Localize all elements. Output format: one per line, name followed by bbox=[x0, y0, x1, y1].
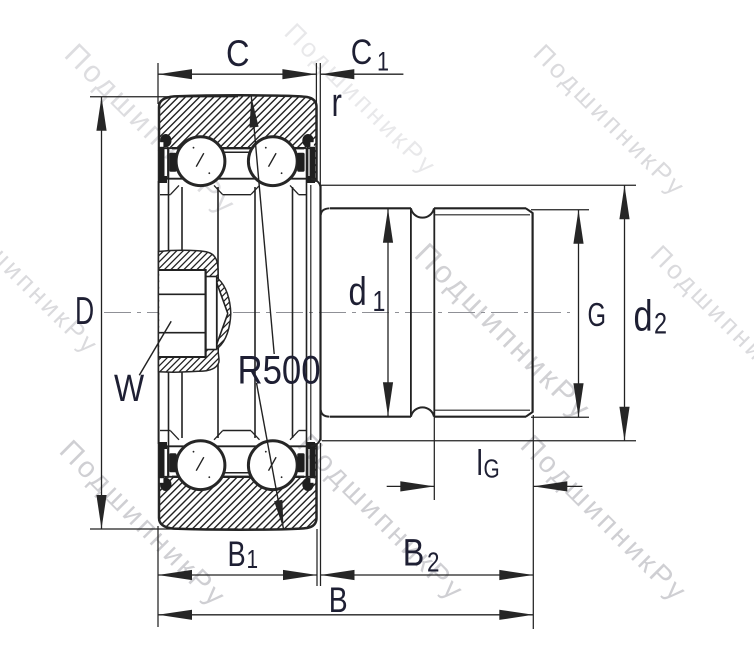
svg-text:G: G bbox=[588, 297, 606, 334]
svg-text:d: d bbox=[349, 269, 367, 314]
svg-text:1: 1 bbox=[377, 47, 389, 77]
svg-text:r: r bbox=[332, 80, 342, 125]
svg-text:G: G bbox=[484, 454, 500, 483]
svg-text:B: B bbox=[403, 532, 425, 574]
svg-text:W: W bbox=[114, 367, 144, 409]
svg-text:l: l bbox=[477, 442, 483, 483]
svg-text:D: D bbox=[75, 290, 94, 333]
svg-text:1: 1 bbox=[373, 284, 386, 317]
svg-text:d: d bbox=[634, 291, 653, 340]
svg-text:C: C bbox=[351, 33, 372, 72]
svg-text:C: C bbox=[226, 33, 250, 74]
svg-text:2: 2 bbox=[427, 547, 439, 578]
svg-text:B: B bbox=[329, 580, 348, 620]
svg-text:R500: R500 bbox=[238, 347, 321, 392]
svg-text:B: B bbox=[228, 535, 246, 574]
svg-text:2: 2 bbox=[654, 307, 667, 340]
svg-text:1: 1 bbox=[247, 545, 259, 574]
